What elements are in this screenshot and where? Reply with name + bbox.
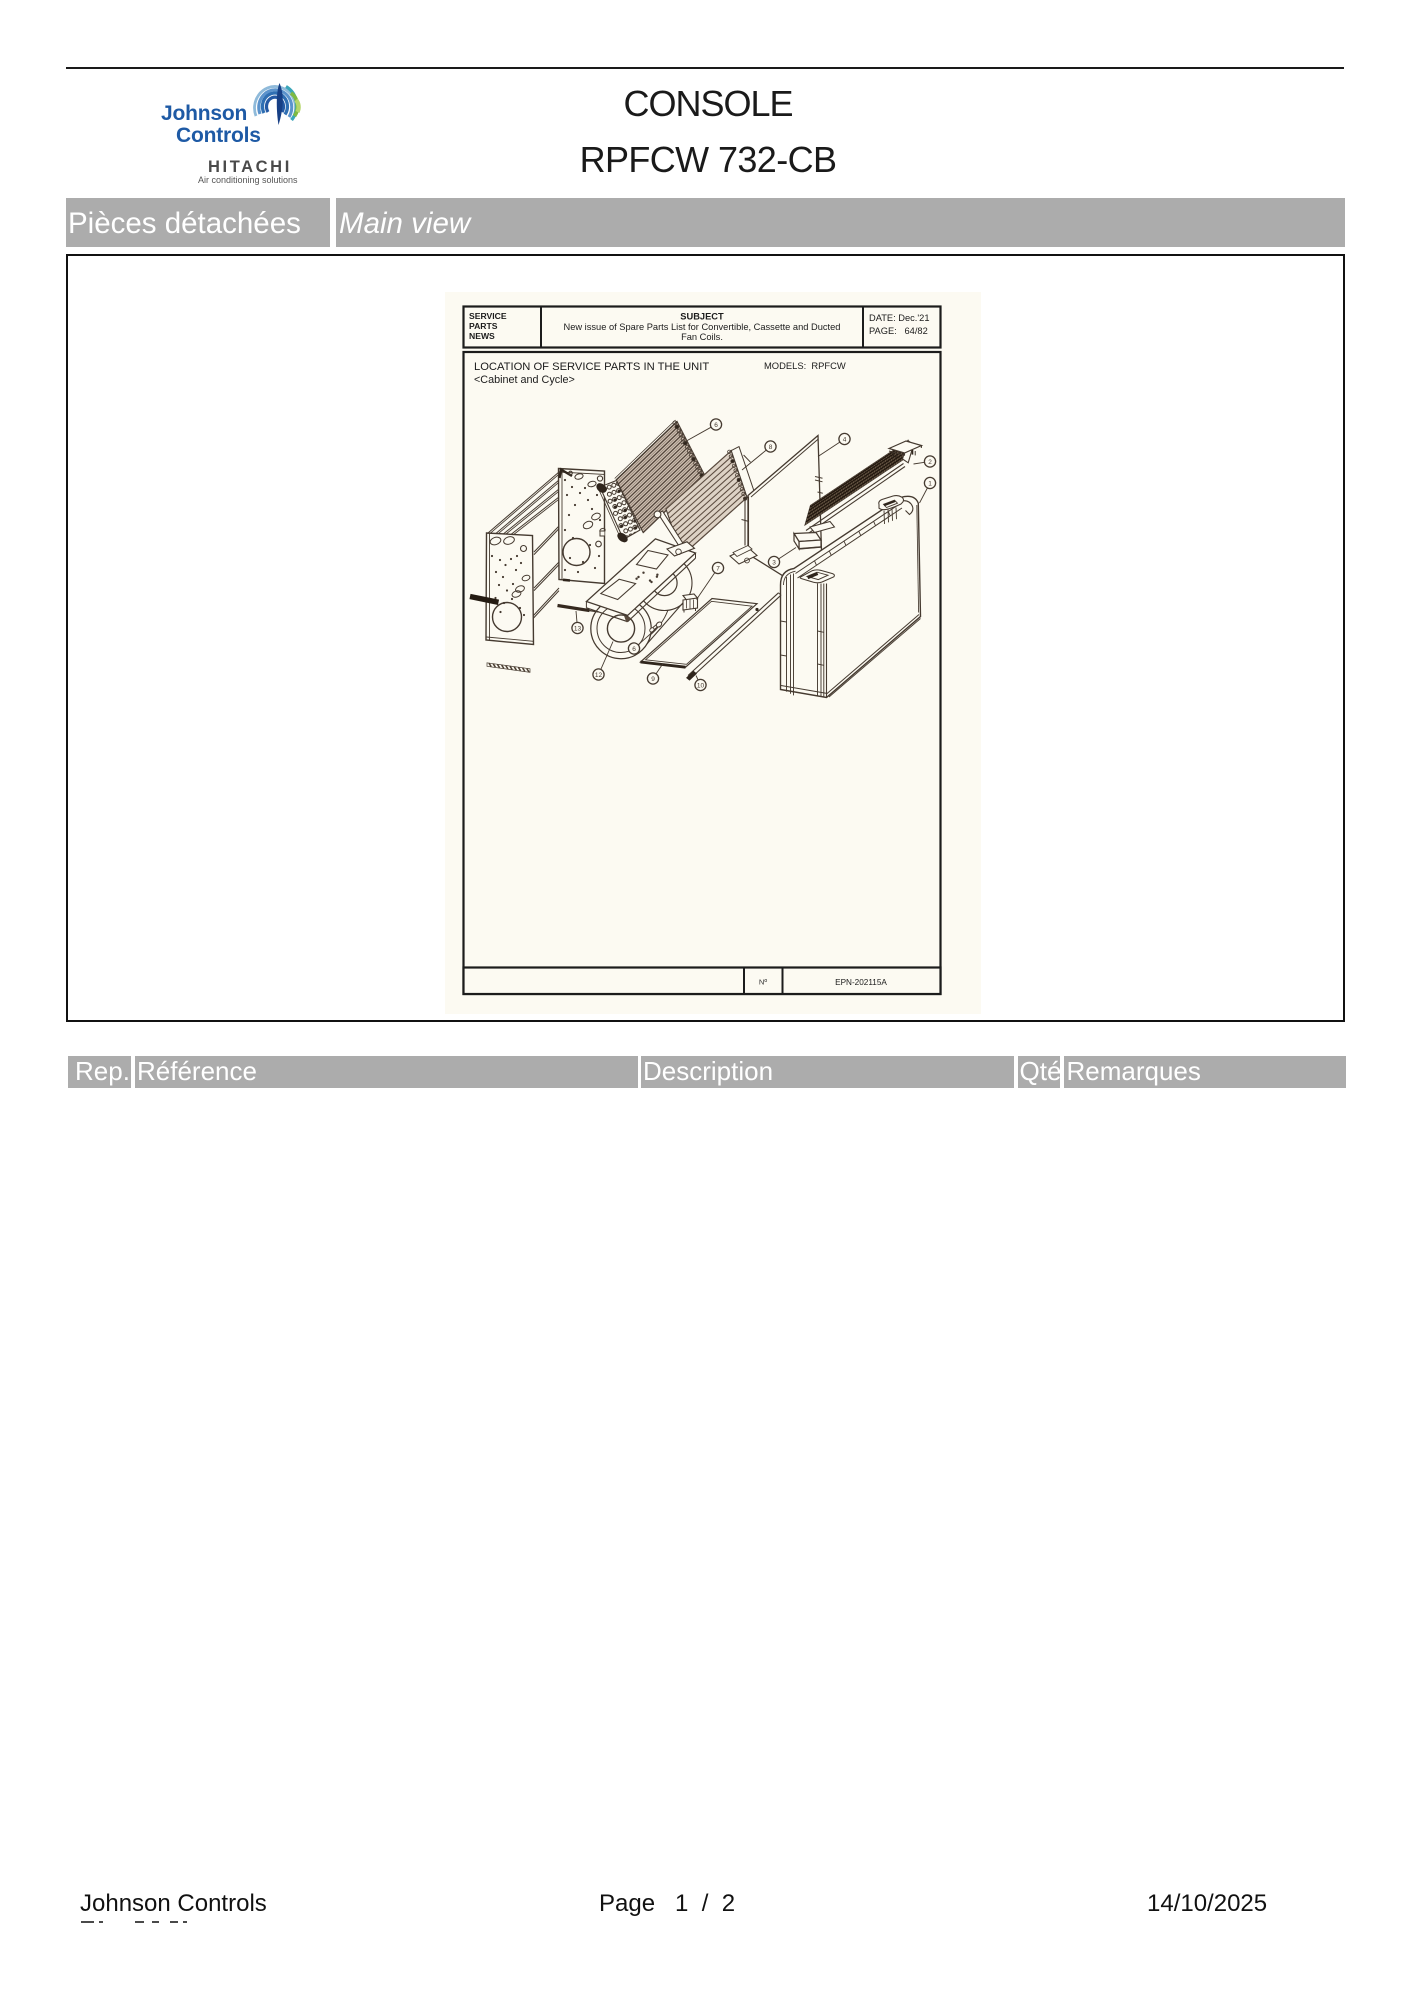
svg-text:4: 4 [843, 436, 847, 443]
svg-text:1: 1 [928, 480, 932, 487]
svg-text:9: 9 [651, 676, 655, 683]
svg-text:3: 3 [772, 559, 776, 566]
svg-text:2: 2 [928, 459, 932, 466]
svg-text:MODELS: RPFCW: MODELS: RPFCW [764, 360, 846, 371]
svg-text:DATE: Dec.'21: DATE: Dec.'21 [869, 313, 930, 323]
svg-text:7: 7 [716, 565, 720, 572]
svg-text:Nº: Nº [759, 978, 767, 987]
svg-text:New issue of Spare Parts List: New issue of Spare Parts List for Conver… [564, 322, 841, 332]
svg-text:SERVICE: SERVICE [469, 311, 507, 321]
svg-text:PARTS: PARTS [469, 321, 498, 331]
svg-text:LOCATION OF SERVICE PARTS IN T: LOCATION OF SERVICE PARTS IN THE UNIT [474, 361, 709, 373]
svg-text:10: 10 [697, 682, 705, 689]
svg-text:12: 12 [595, 672, 603, 679]
svg-text:6: 6 [632, 646, 636, 653]
svg-text:13: 13 [574, 625, 582, 632]
svg-text:<Cabinet and Cycle>: <Cabinet and Cycle> [474, 374, 575, 386]
svg-text:6: 6 [714, 422, 718, 429]
svg-text:Fan Coils.: Fan Coils. [681, 332, 723, 342]
svg-text:NEWS: NEWS [469, 331, 495, 341]
svg-text:SUBJECT: SUBJECT [680, 312, 724, 322]
svg-text:PAGE: 64/82: PAGE: 64/82 [869, 326, 928, 336]
svg-text:8: 8 [769, 444, 773, 451]
svg-text:EPN-202115A: EPN-202115A [835, 978, 887, 987]
